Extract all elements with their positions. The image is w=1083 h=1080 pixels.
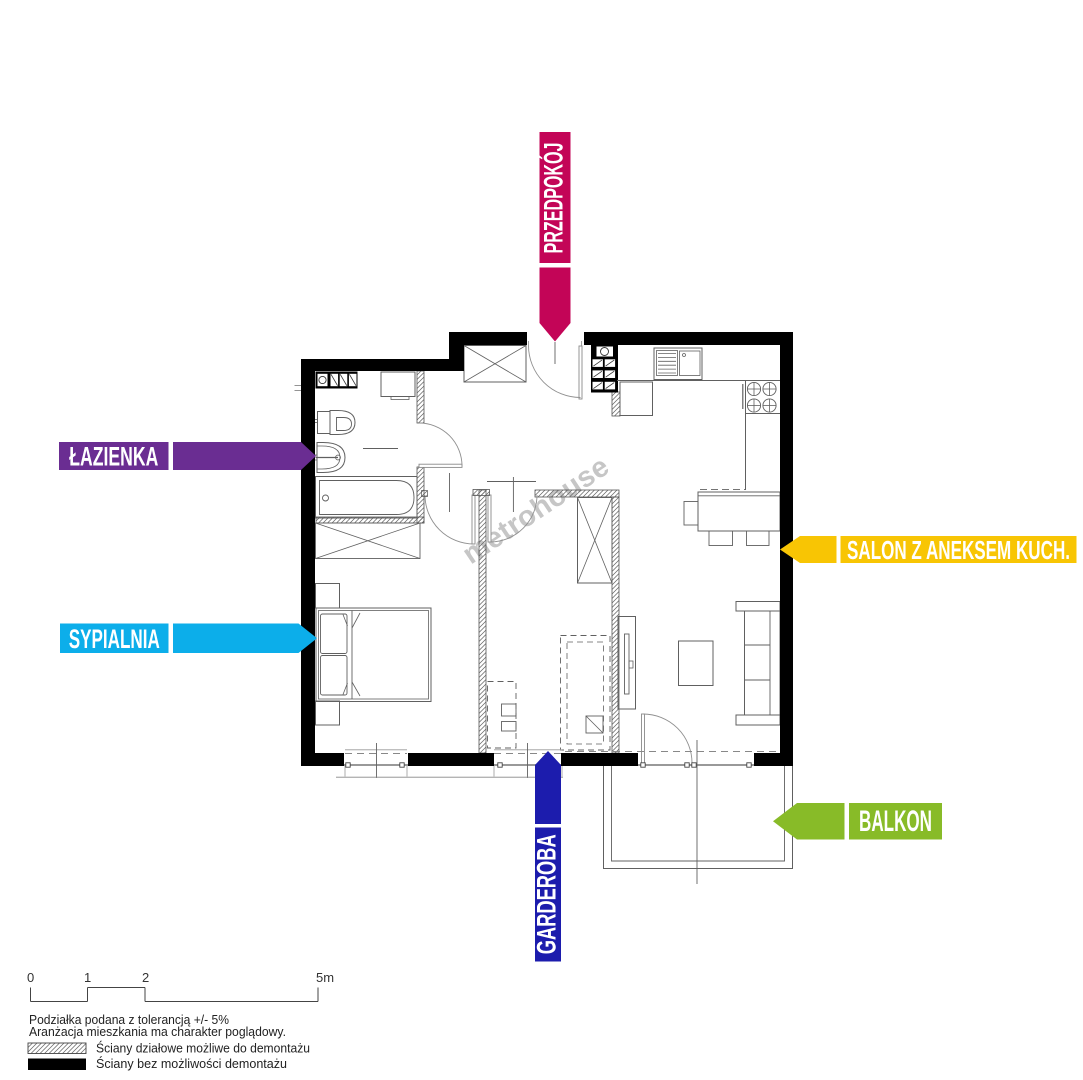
svg-text:Ściany działowe możliwe do dem: Ściany działowe możliwe do demontażu xyxy=(96,1041,310,1056)
svg-text:1: 1 xyxy=(84,970,91,985)
svg-text:SYPIALNIA: SYPIALNIA xyxy=(69,624,160,654)
svg-text:2: 2 xyxy=(142,970,149,985)
svg-text:SALON Z ANEKSEM KUCH.: SALON Z ANEKSEM KUCH. xyxy=(847,535,1070,565)
svg-text:GARDEROBA: GARDEROBA xyxy=(532,834,562,954)
svg-text:PRZEDPOKÓJ: PRZEDPOKÓJ xyxy=(538,143,569,254)
svg-text:BALKON: BALKON xyxy=(859,805,932,838)
svg-text:5m: 5m xyxy=(316,970,334,985)
svg-text:Ściany bez możliwości demontaż: Ściany bez możliwości demontażu xyxy=(96,1056,287,1071)
svg-text:Aranżacja mieszkania ma charak: Aranżacja mieszkania ma charakter pogląd… xyxy=(29,1024,286,1039)
svg-text:0: 0 xyxy=(27,970,34,985)
svg-text:ŁAZIENKA: ŁAZIENKA xyxy=(69,442,158,472)
